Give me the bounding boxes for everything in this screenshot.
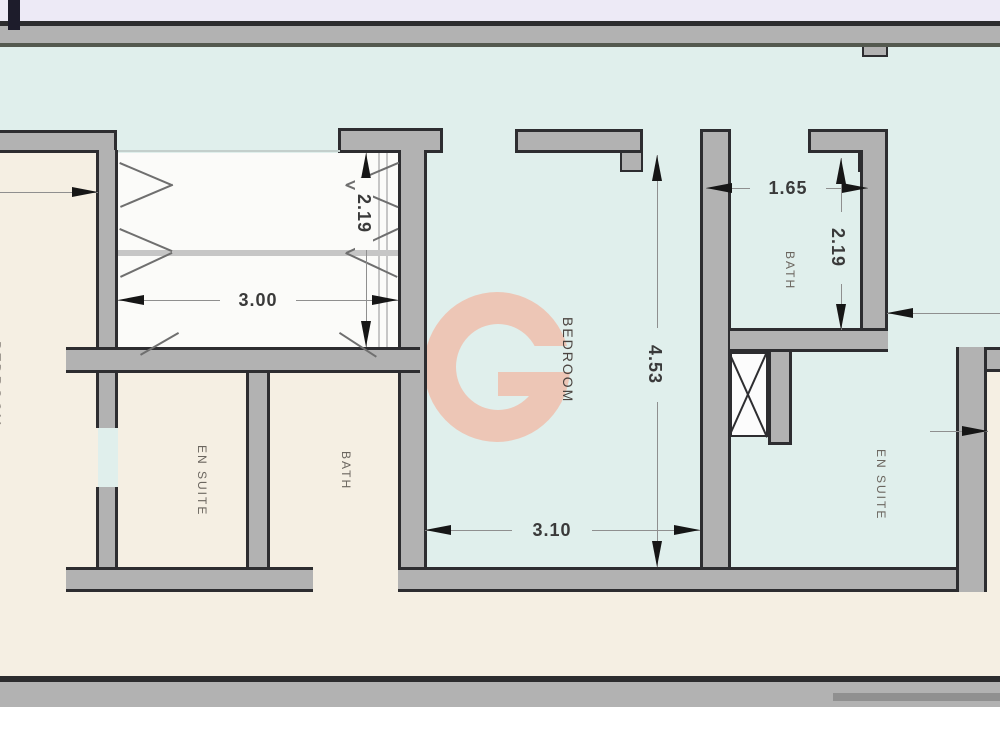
door-gap-bottom-left (0, 567, 66, 592)
wall (860, 150, 888, 352)
right-room-area (987, 372, 1000, 592)
top-exterior-wall (0, 26, 1000, 43)
bottom-exterior-wall-inner-line (833, 693, 1000, 701)
dimension-arrow (962, 426, 988, 436)
room-label-en-suite-left: EN SUITE (164, 438, 212, 524)
dimension-arrow (674, 525, 700, 535)
logo-g-icon (424, 292, 572, 444)
room-label-bath-right: BATH (774, 236, 800, 306)
dimension-arrow (425, 525, 451, 535)
room-label-bedroom: BEDROOM (553, 284, 579, 436)
dimension-label: 1.65 (750, 177, 826, 199)
floor-plan: 3.00 2.19 3.10 4.53 1.65 2.19 BEDROOM EN… (0, 0, 1000, 750)
dimension-arrow (836, 304, 846, 330)
wall (338, 128, 443, 153)
dimension-label: 3.10 (512, 519, 592, 541)
room-label-left-bedroom: BEDROOM (0, 312, 7, 457)
top-margin-band (0, 0, 1000, 21)
wall-notch (862, 47, 888, 57)
room-label-bath-left: BATH (330, 436, 356, 506)
room-label-en-suite-right: EN SUITE (843, 442, 891, 528)
dimension-label: 2.19 (829, 212, 847, 284)
closet-opening-line (118, 150, 340, 152)
wall (398, 567, 987, 592)
bottom-margin (0, 707, 1000, 750)
dimension-label: 3.00 (220, 289, 296, 311)
dimension-arrow (652, 541, 662, 567)
wall (730, 328, 888, 352)
dimension-arrow (652, 155, 662, 181)
dimension-arrow (842, 183, 868, 193)
top-exterior-wall-inner-line (0, 43, 1000, 47)
dimension-arrow (706, 183, 732, 193)
bottom-hall-area (0, 592, 1000, 678)
dimension-arrow (361, 153, 371, 179)
dimension-arrow (72, 187, 98, 197)
dimension-arrow (887, 308, 913, 318)
dimension-label: 2.19 (355, 178, 373, 250)
cutoff-mark (8, 0, 20, 30)
wall (246, 373, 270, 567)
wall (768, 352, 792, 445)
dimension-arrow (361, 321, 371, 347)
dimension-arrow (836, 158, 846, 184)
dimension-arrow (118, 295, 144, 305)
wall (515, 129, 643, 153)
wall (66, 567, 313, 592)
wall (700, 129, 731, 567)
wall (956, 347, 987, 592)
door-gap-bath (313, 567, 398, 592)
wall-stub (620, 153, 643, 172)
dimension-label: 4.53 (646, 328, 664, 402)
closet-shelf-line (118, 250, 398, 256)
dimension-arrow (372, 295, 398, 305)
wall (96, 150, 118, 428)
